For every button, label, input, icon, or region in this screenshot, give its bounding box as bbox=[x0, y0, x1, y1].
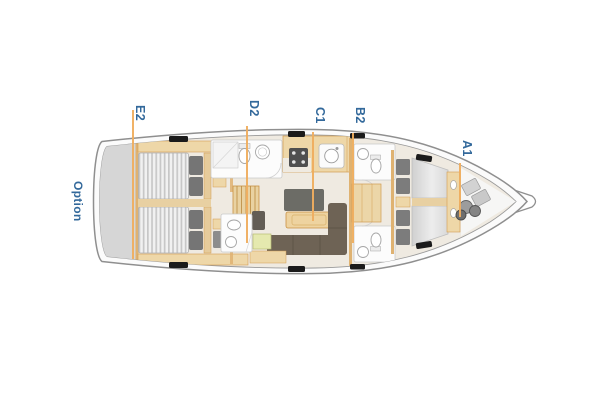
yacht-layout-diagram: E2 D2 C1 B2 A1 Option bbox=[0, 0, 609, 406]
toilet bbox=[239, 149, 250, 164]
mid-wardrobe bbox=[352, 184, 381, 222]
pillow bbox=[189, 231, 203, 250]
aft-berth-port bbox=[139, 153, 189, 199]
label-b2: B2 bbox=[353, 107, 367, 124]
label-e2: E2 bbox=[133, 105, 147, 121]
nav-seat bbox=[252, 211, 265, 230]
aft-berth-starboard bbox=[139, 207, 189, 253]
pillow bbox=[189, 177, 203, 196]
pillow bbox=[189, 210, 203, 229]
sink bbox=[226, 237, 237, 248]
galley bbox=[283, 136, 352, 172]
bulkhead-fwd bbox=[391, 150, 394, 254]
sink bbox=[358, 149, 369, 160]
toilet bbox=[228, 220, 241, 230]
label-c1: C1 bbox=[313, 107, 327, 124]
pillow bbox=[189, 156, 203, 175]
salon-table bbox=[286, 212, 332, 228]
windlass bbox=[470, 206, 481, 217]
toilet bbox=[371, 233, 381, 247]
pillow-column bbox=[396, 159, 410, 175]
aft-centre-joinery bbox=[138, 199, 211, 207]
label-d2: D2 bbox=[247, 100, 261, 117]
bulkhead-b2 bbox=[349, 138, 352, 266]
sink bbox=[256, 145, 270, 159]
sink bbox=[358, 247, 369, 258]
deck-plan-canvas: E2 D2 C1 B2 A1 Option bbox=[0, 0, 609, 406]
label-option: Option bbox=[71, 181, 85, 221]
sideboard bbox=[284, 189, 324, 211]
label-a1: A1 bbox=[460, 140, 474, 157]
chart-table bbox=[253, 234, 271, 249]
stove bbox=[289, 148, 308, 167]
toilet bbox=[371, 159, 381, 173]
